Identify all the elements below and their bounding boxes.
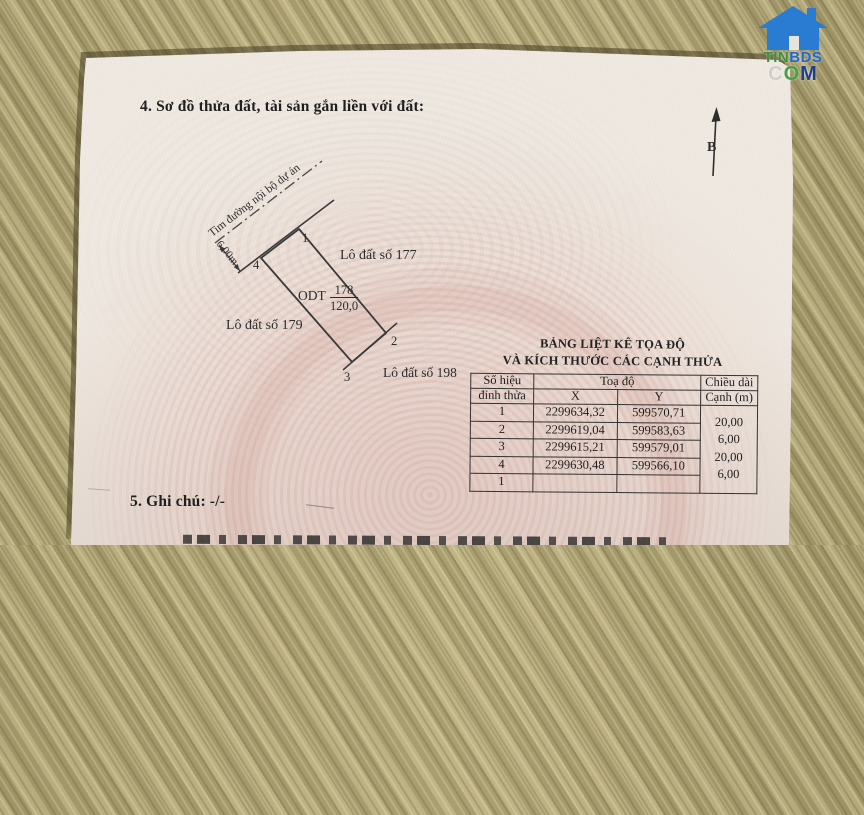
vertex-2-label: 2: [391, 334, 397, 348]
coord-x: 2299630,48: [533, 456, 617, 474]
tinbds-watermark: TINBDS COM: [745, 6, 841, 84]
vertex-1-label: 1: [302, 231, 308, 245]
coord-y: [616, 475, 700, 493]
edge-length: 20,00: [701, 449, 757, 463]
header-vertex-line1: Số hiệu: [471, 373, 534, 389]
vertex-id: 3: [470, 438, 533, 456]
coordinate-table-block: BẢNG LIỆT KÊ TỌA ĐỘ VÀ KÍCH THƯỚC CÁC CẠ…: [467, 335, 756, 494]
land-use-code: ODT: [298, 288, 326, 303]
rear-edge-extension: [343, 323, 397, 370]
coordinate-table: Số hiệu Toạ độ Chiều dài đỉnh thửa X Y C…: [469, 373, 758, 494]
logo-com-c: C: [768, 63, 783, 85]
coord-x: 2299615,21: [533, 439, 617, 457]
coord-x: [533, 474, 617, 492]
header-y: Y: [617, 390, 701, 406]
logo-com-o: O: [784, 63, 801, 85]
parcel-number: 178: [335, 283, 354, 297]
road-name-label: Tim đường nội bộ dự án: [207, 162, 303, 240]
coord-y: 599579,01: [617, 440, 701, 458]
parcel-code-fraction: ODT 178 120,0: [298, 283, 358, 313]
edge-length: 20,00: [701, 415, 757, 429]
vertex-id: 4: [470, 456, 533, 474]
edge-length-cell: 20,00 6,00 20,00 6,00: [700, 405, 758, 493]
coord-y: 599583,63: [617, 422, 701, 440]
neighbor-plot-198-label: Lô đất số 198: [383, 365, 457, 380]
coord-x: 2299619,04: [533, 421, 617, 439]
vertex-id: 2: [470, 421, 533, 439]
vertex-id: 1: [470, 473, 533, 491]
road-width-label: 6,00m: [214, 238, 241, 268]
edge-length: 6,00: [701, 432, 757, 446]
header-length-line2: Cạnh (m): [701, 390, 758, 405]
neighbor-plot-179-label: Lô đất số 179: [226, 318, 303, 333]
header-coords: Toạ độ: [534, 374, 701, 390]
vertex-3-label: 3: [344, 370, 350, 384]
tinbds-house-icon: [755, 6, 831, 50]
vertex-id: 1: [470, 403, 533, 421]
header-length-line1: Chiều dài: [701, 375, 758, 390]
logo-line2: COM: [745, 65, 841, 84]
vertex-4-label: 4: [253, 258, 260, 272]
header-x: X: [534, 389, 618, 405]
north-label: B: [707, 140, 716, 155]
header-vertex-line2: đỉnh thửa: [471, 388, 534, 404]
logo-com-m: M: [800, 63, 818, 85]
neighbor-plot-177-label: Lô đất số 177: [340, 248, 417, 263]
parcel-area: 120,0: [330, 299, 358, 313]
edge-length: 6,00: [700, 467, 756, 481]
table-title-line2: VÀ KÍCH THƯỚC CÁC CẠNH THỬA: [468, 351, 756, 370]
coord-x: 2299634,32: [533, 404, 617, 422]
coord-y: 599570,71: [617, 405, 701, 423]
certificate-page: 4. Sơ đồ thửa đất, tài sản gắn liền với …: [0, 0, 864, 545]
coord-y: 599566,10: [616, 457, 700, 475]
north-arrow-icon: B: [707, 107, 721, 176]
